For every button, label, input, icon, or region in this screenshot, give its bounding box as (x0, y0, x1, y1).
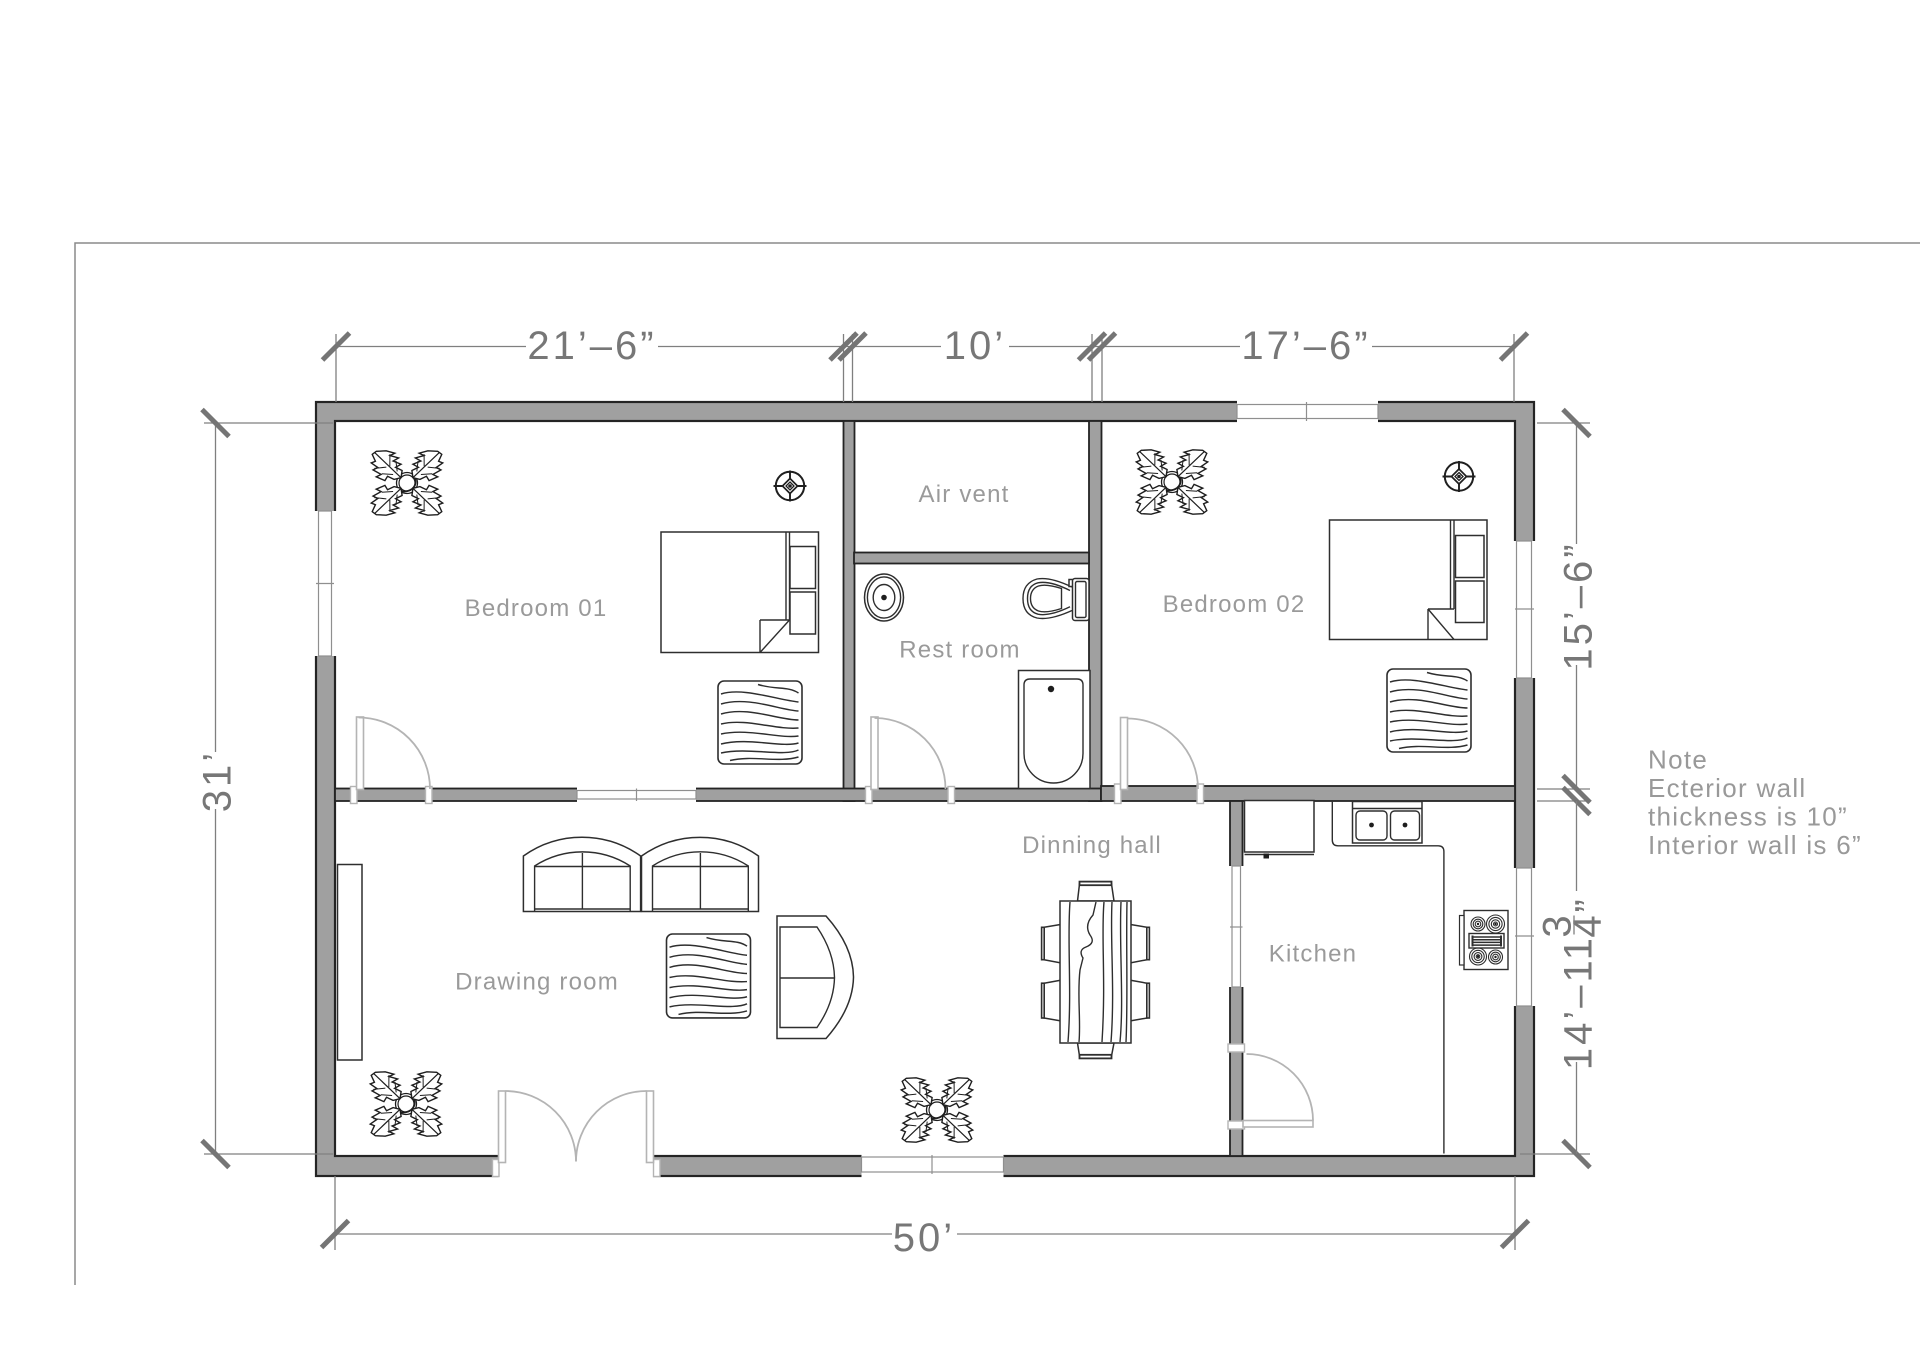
svg-text:31’: 31’ (196, 750, 240, 812)
svg-text:21’–6”: 21’–6” (527, 324, 656, 368)
svg-text:Bedroom 02: Bedroom 02 (1163, 591, 1306, 618)
svg-text:Dinning hall: Dinning hall (1022, 832, 1162, 859)
svg-text:Interior wall is 6”: Interior wall is 6” (1648, 830, 1862, 860)
svg-text:Air vent: Air vent (919, 481, 1010, 508)
svg-text:Note: Note (1648, 745, 1708, 775)
svg-text:4: 4 (1566, 912, 1610, 937)
svg-text:10’: 10’ (944, 324, 1006, 368)
svg-text:15’–6”: 15’–6” (1557, 541, 1601, 670)
svg-text:Rest room: Rest room (899, 637, 1021, 664)
svg-text:Bedroom 01: Bedroom 01 (465, 595, 608, 622)
svg-text:thickness is 10”: thickness is 10” (1648, 802, 1848, 832)
svg-text:Ecterior wall: Ecterior wall (1648, 773, 1807, 803)
svg-text:Drawing room: Drawing room (455, 969, 619, 996)
svg-text:Kitchen: Kitchen (1269, 941, 1357, 968)
svg-text:50’: 50’ (893, 1216, 955, 1260)
svg-text:17’–6”: 17’–6” (1241, 324, 1370, 368)
svg-text:14’–11: 14’–11 (1557, 935, 1601, 1070)
svg-text:”: ” (1568, 896, 1612, 912)
